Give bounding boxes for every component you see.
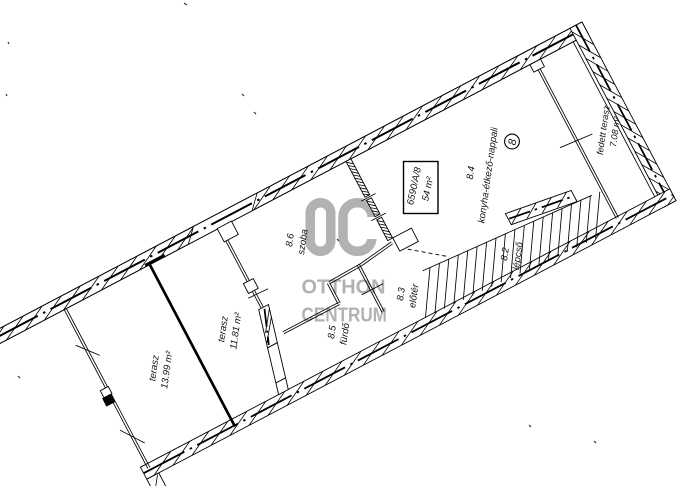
svg-text:8.6: 8.6 [284, 232, 297, 247]
svg-text:8.3: 8.3 [395, 286, 408, 301]
svg-text:8.2: 8.2 [499, 246, 512, 261]
svg-text:8.4: 8.4 [465, 166, 478, 181]
svg-text:8.5: 8.5 [326, 324, 339, 339]
